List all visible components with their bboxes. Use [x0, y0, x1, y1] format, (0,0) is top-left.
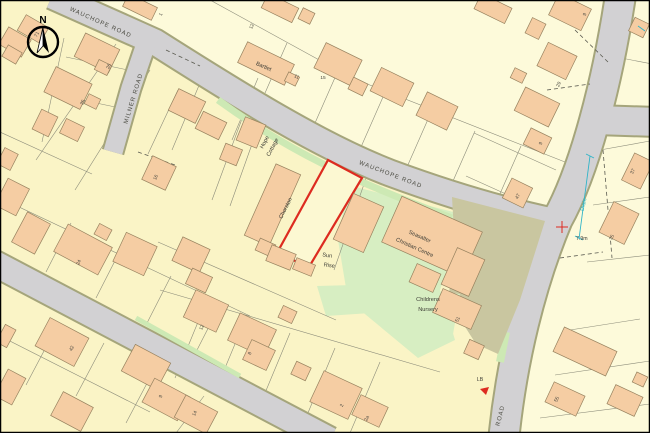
north-label: N: [39, 15, 46, 26]
nursery-label-1: Childrens: [416, 297, 440, 303]
garden-green: [317, 284, 392, 316]
nursery-label-2: Nursery: [418, 307, 438, 313]
map-canvas: N WAUCHOPE ROAD WAUCHOPE ROAD MILNER ROA…: [0, 0, 650, 433]
road-surface: [596, 120, 650, 122]
letter-box-label: LB: [477, 377, 484, 383]
spot-height-label: 7.9m: [576, 236, 588, 242]
house-number: 15: [320, 75, 326, 81]
site-location-map: N WAUCHOPE ROAD WAUCHOPE ROAD MILNER ROA…: [0, 0, 650, 433]
